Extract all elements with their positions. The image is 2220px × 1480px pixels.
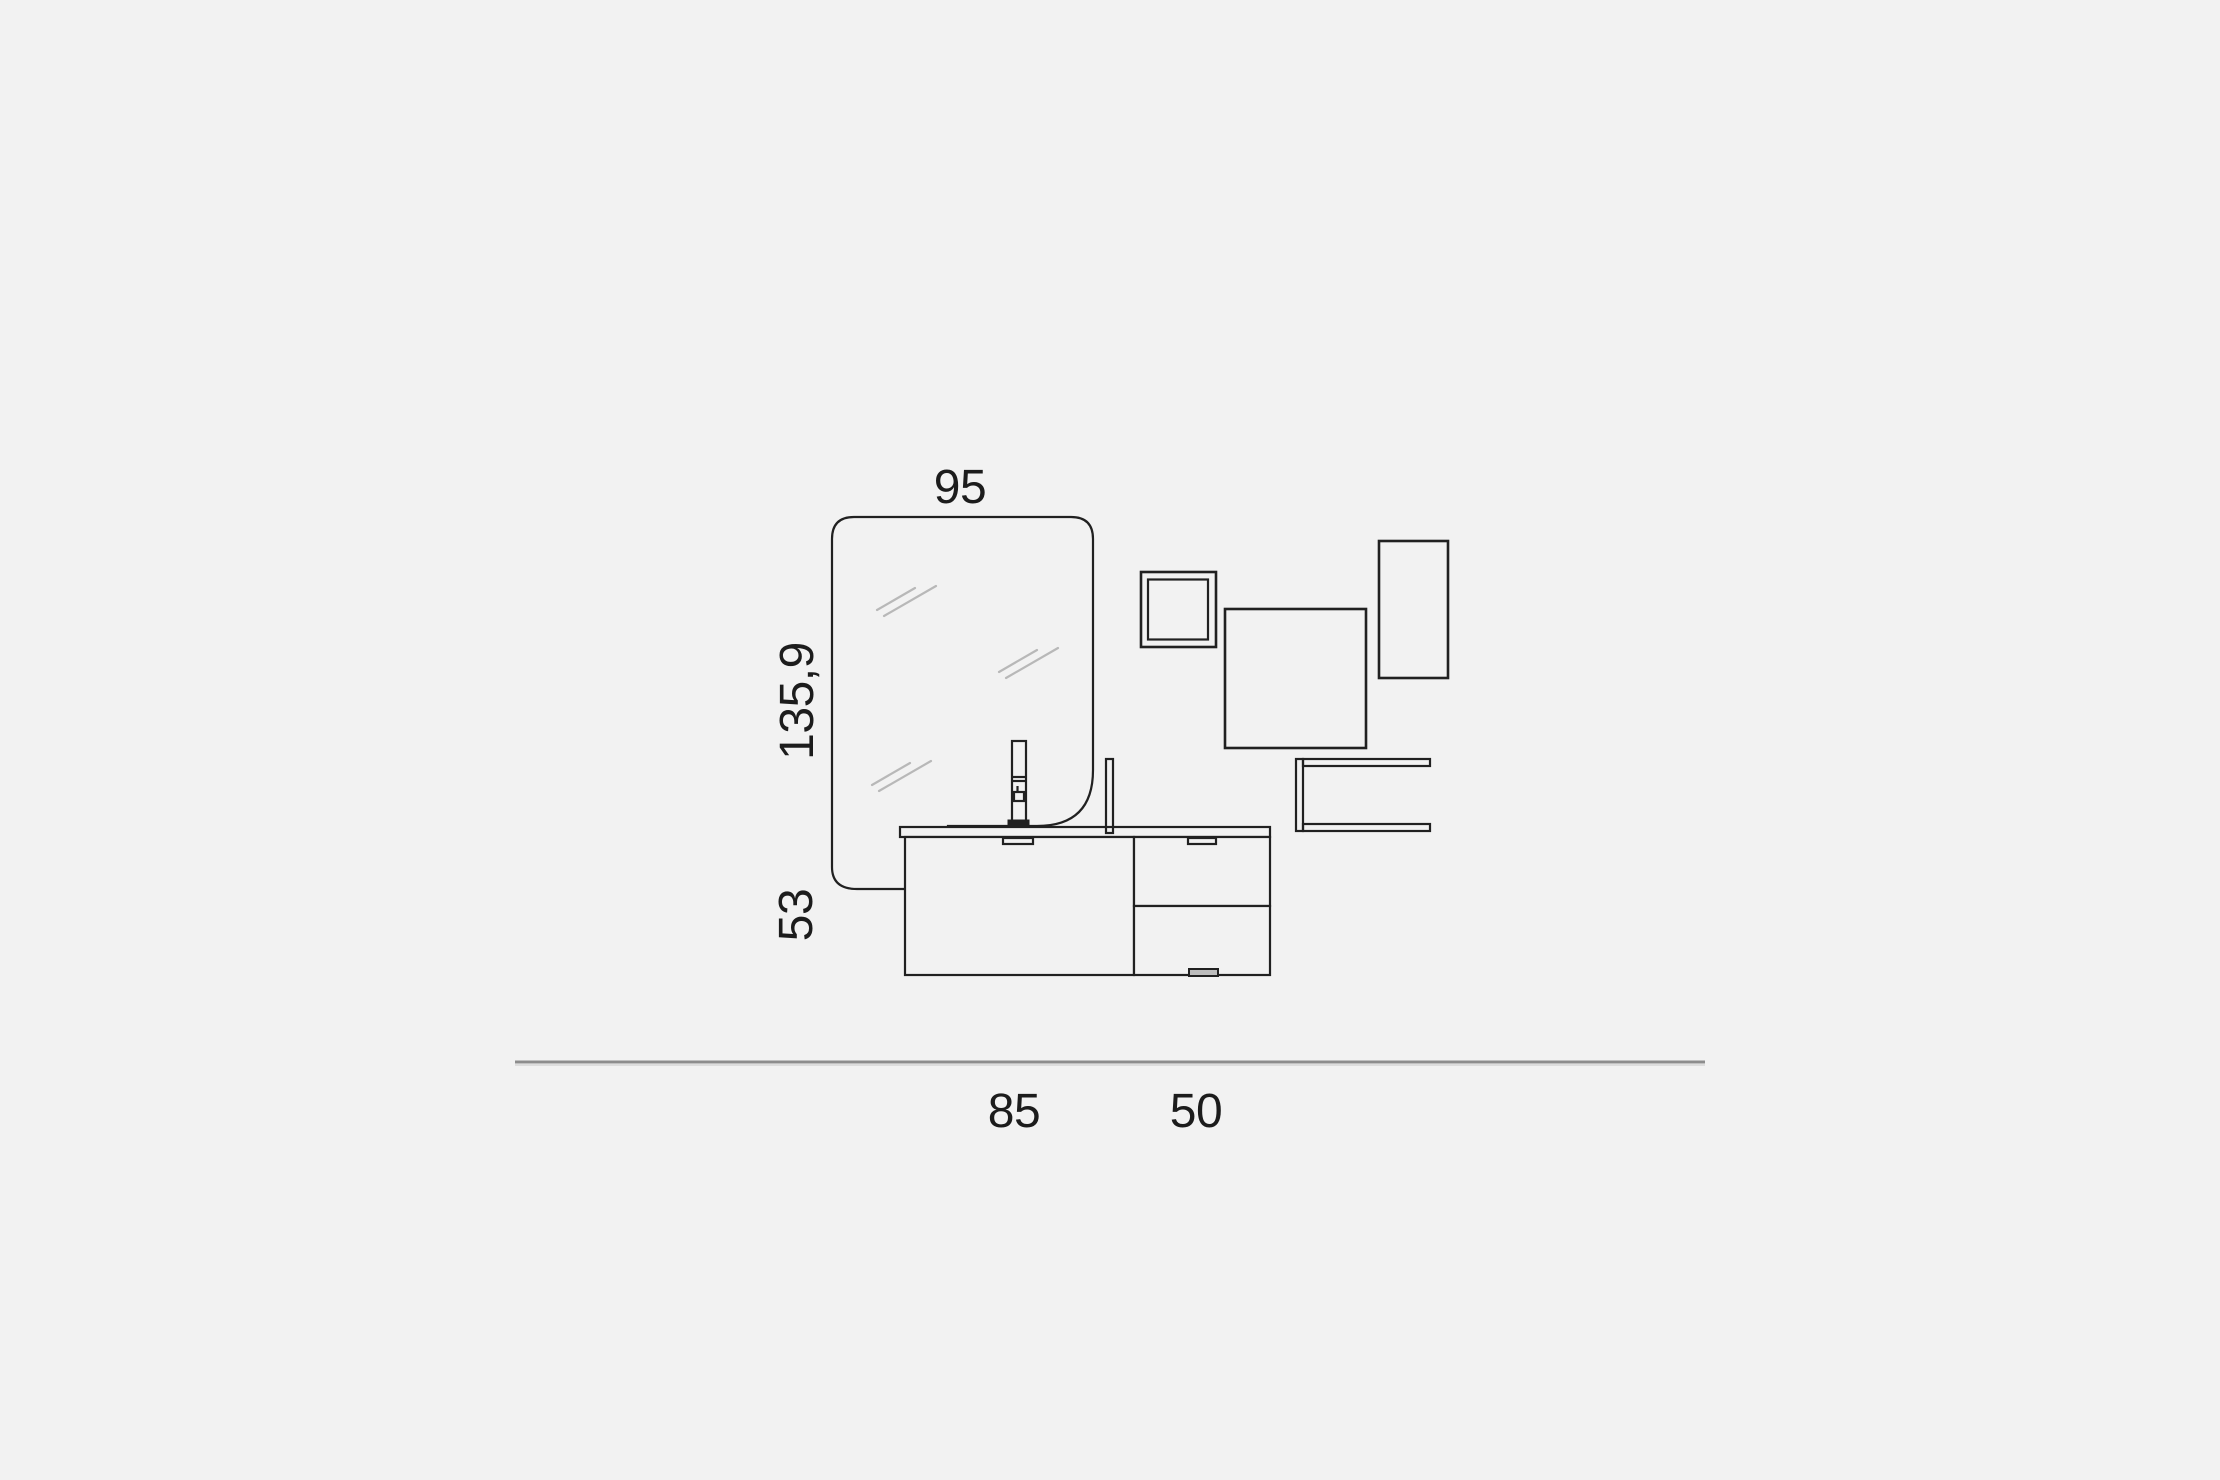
dimension-right-module-width: 50 <box>1170 1085 1222 1138</box>
vanity-bottom-drawer <box>1134 906 1270 975</box>
vanity-countertop <box>900 827 1270 837</box>
open-shelf-bracket <box>1296 759 1430 831</box>
faucet <box>1008 741 1029 827</box>
vanity-top-drawer <box>1134 837 1270 906</box>
vanity-unit <box>900 827 1270 976</box>
bracket-top-shelf <box>1303 759 1430 766</box>
bracket-bottom-shelf <box>1303 824 1430 831</box>
elevation-drawing-canvas: 95 135,9 53 85 50 <box>0 0 2220 1480</box>
bottom-drawer-handle <box>1189 969 1218 976</box>
bracket-side-panel <box>1296 759 1303 831</box>
faucet-base <box>1008 820 1029 827</box>
dimension-vanity-height: 53 <box>770 889 823 941</box>
open-box-shelf-outer <box>1141 572 1216 647</box>
tall-wall-cabinet <box>1379 541 1448 678</box>
dimension-left-module-width: 85 <box>988 1085 1040 1138</box>
square-wall-cabinet <box>1225 609 1366 748</box>
vanity-left-door <box>905 837 1134 975</box>
dimension-mirror-height: 135,9 <box>771 642 824 760</box>
bathroom-furniture-elevation: 95 135,9 53 85 50 <box>0 0 2220 1480</box>
dimension-mirror-width: 95 <box>934 461 986 514</box>
tall-spout-bar <box>1106 759 1113 833</box>
wall-elements <box>1141 541 1448 831</box>
